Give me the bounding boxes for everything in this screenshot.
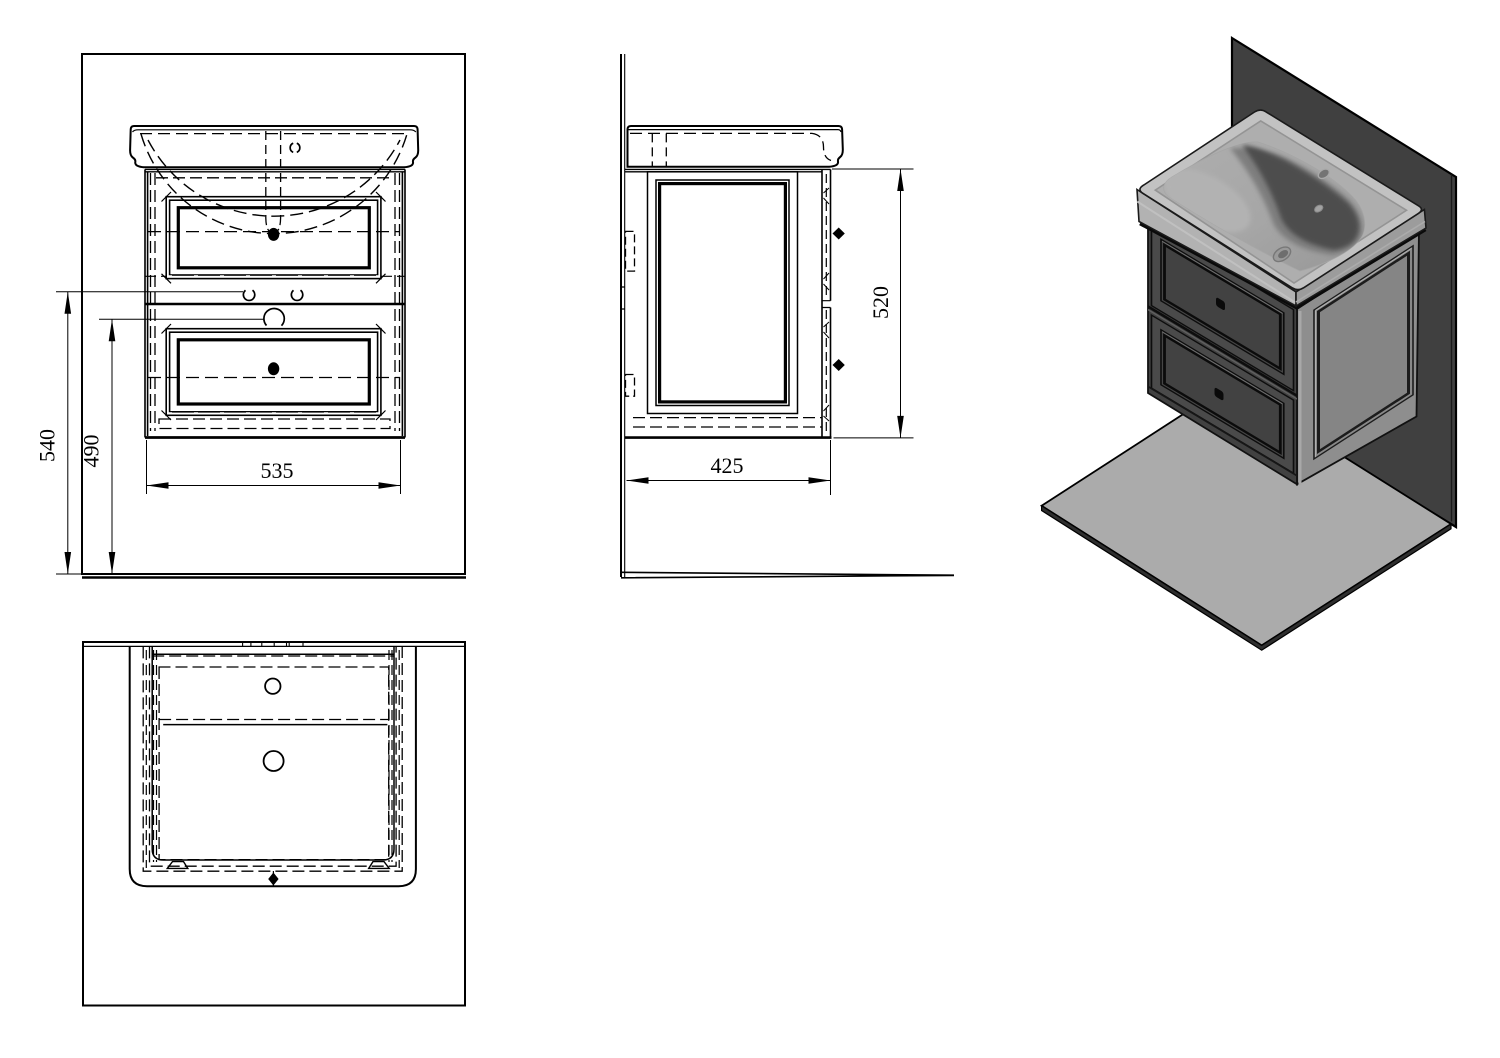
svg-text:540: 540	[35, 429, 60, 462]
svg-text:425: 425	[711, 453, 744, 478]
svg-text:535: 535	[261, 458, 294, 483]
svg-text:490: 490	[78, 435, 103, 468]
svg-text:520: 520	[868, 286, 893, 319]
